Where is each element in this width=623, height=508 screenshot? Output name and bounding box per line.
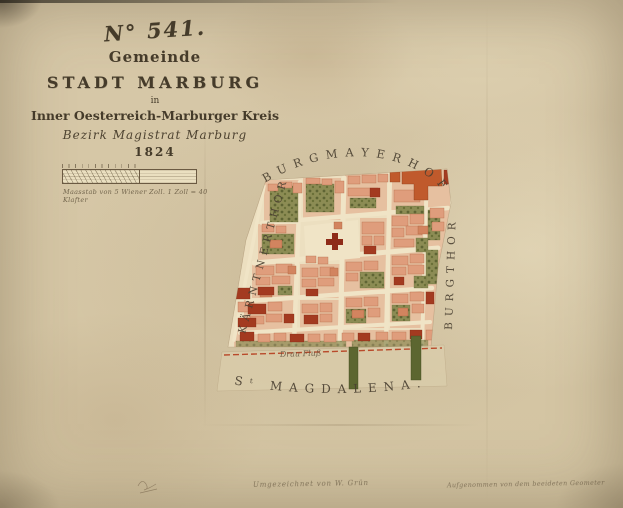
map-sheet: N° 541. Gemeinde STADT MARBURG in Inner … <box>0 0 623 508</box>
handwritten-mark <box>138 481 157 493</box>
green-strip <box>411 336 421 380</box>
label-burgthor: BURGTHOR <box>443 216 459 330</box>
label-burgthor-text: BURGTHOR <box>443 216 459 330</box>
river-label: Drau Fluß <box>279 349 322 359</box>
town-plan-svg: Drau Fluß BURGMAYERHOF KÄRNTNERTHOR BURG… <box>0 0 623 508</box>
